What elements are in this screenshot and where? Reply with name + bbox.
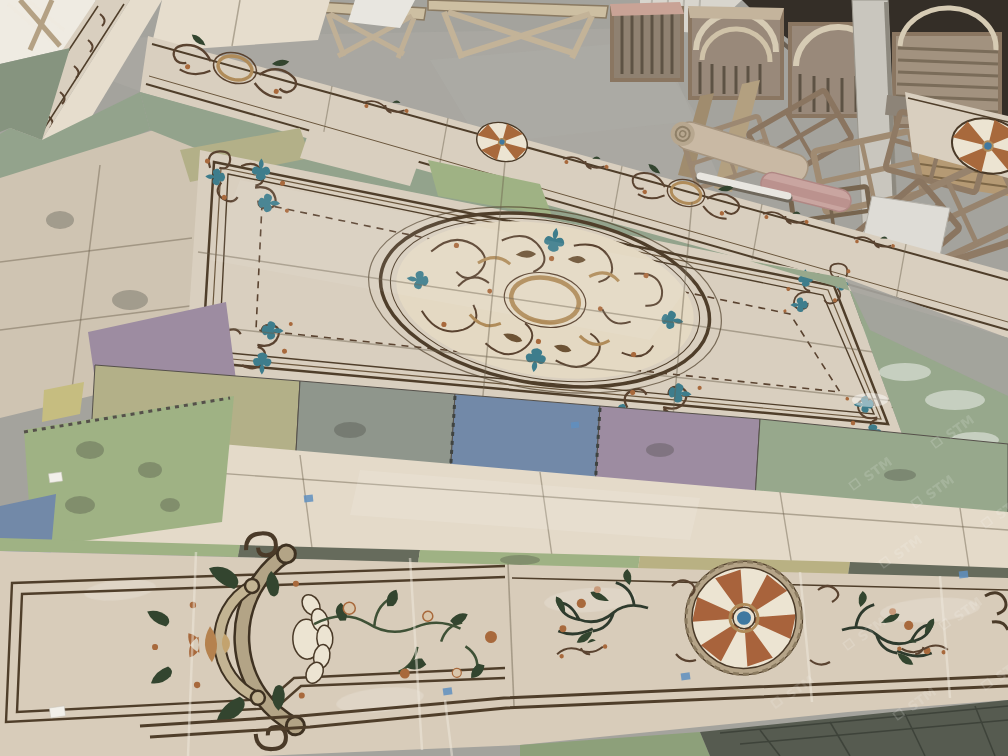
crate-1 [610,2,684,80]
crate-2 [688,6,784,98]
factory-floor-photo: STM STM STM STM STM STM STM STM STM STM [0,0,1008,756]
